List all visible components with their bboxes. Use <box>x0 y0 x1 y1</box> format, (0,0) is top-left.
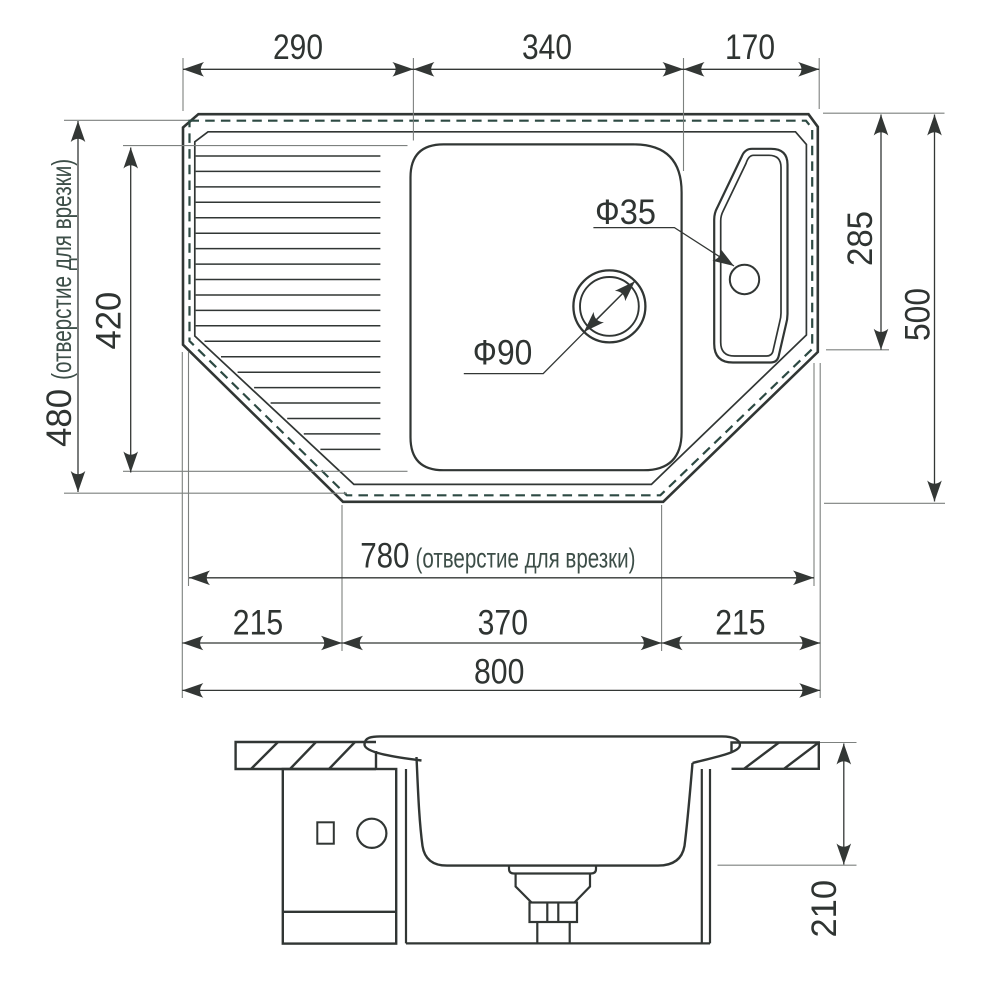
svg-text:285: 285 <box>841 211 880 266</box>
svg-text:215: 215 <box>233 603 283 642</box>
svg-text:800: 800 <box>474 652 524 691</box>
svg-text:290: 290 <box>273 28 323 67</box>
svg-text:210: 210 <box>805 880 844 938</box>
svg-text:215: 215 <box>715 603 765 642</box>
svg-text:Ф90: Ф90 <box>473 333 533 372</box>
svg-text:780(отверстие для врезки): 780(отверстие для врезки) <box>360 537 635 576</box>
svg-text:480(отверстие для врезки): 480(отверстие для врезки) <box>40 159 79 447</box>
svg-text:Ф35: Ф35 <box>595 193 656 232</box>
svg-text:500: 500 <box>899 288 938 341</box>
svg-text:170: 170 <box>725 28 775 67</box>
svg-text:340: 340 <box>522 28 572 67</box>
svg-text:420: 420 <box>90 292 129 350</box>
svg-text:370: 370 <box>478 603 528 642</box>
